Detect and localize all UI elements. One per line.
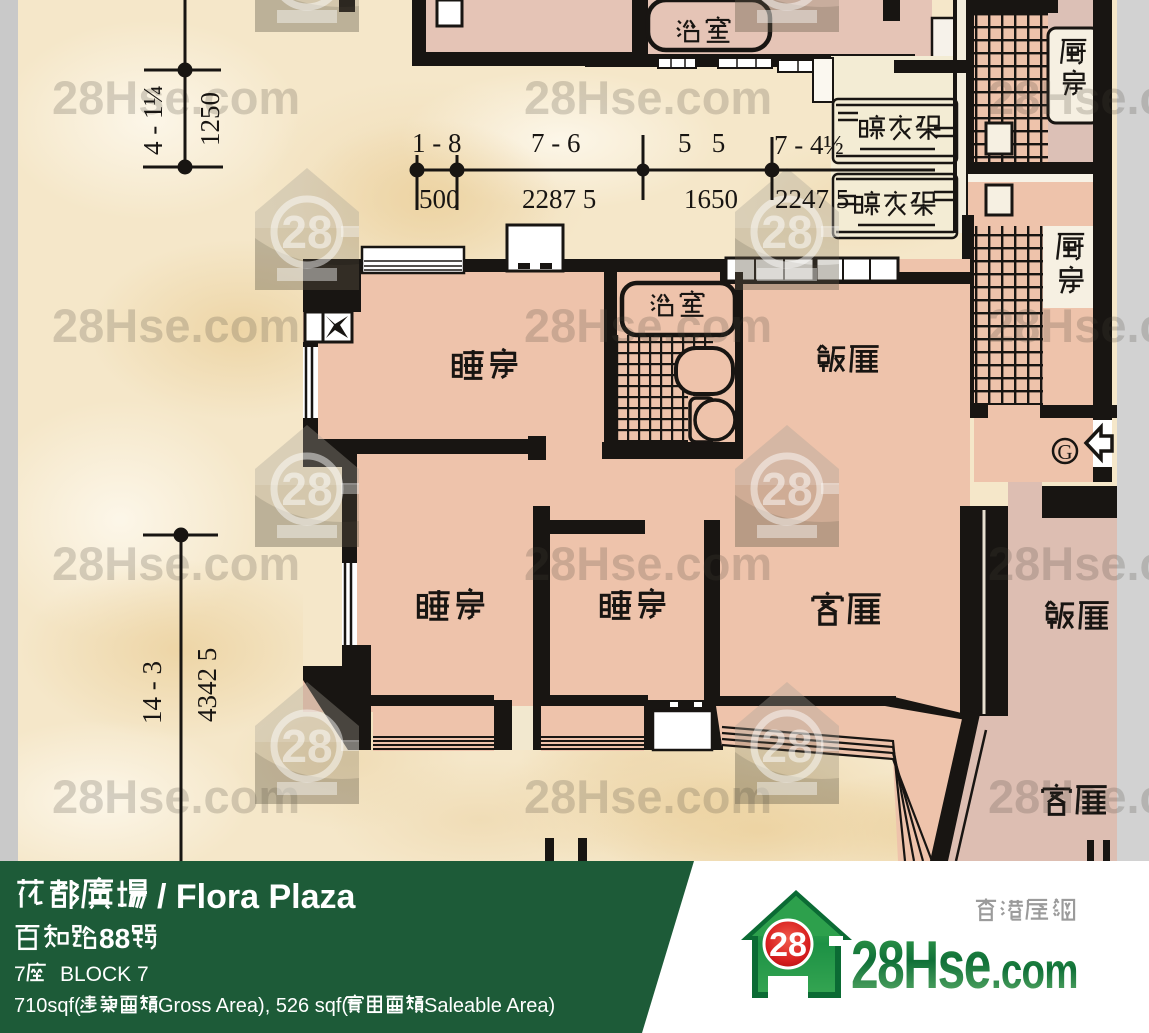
svg-text:/ Flora Plaza: / Flora Plaza xyxy=(157,878,356,916)
svg-text:7 - 4½: 7 - 4½ xyxy=(774,130,844,160)
svg-text:2287 5: 2287 5 xyxy=(522,184,596,214)
svg-text:28Hse.com: 28Hse.com xyxy=(524,299,772,352)
svg-text:BLOCK 7: BLOCK 7 xyxy=(60,963,149,986)
svg-text:14 - 3: 14 - 3 xyxy=(137,661,167,724)
svg-text:28Hse.com: 28Hse.com xyxy=(988,71,1149,124)
svg-text:1 - 8: 1 - 8 xyxy=(412,128,462,158)
svg-text:4 - 1¼: 4 - 1¼ xyxy=(138,85,168,155)
svg-text:500: 500 xyxy=(419,184,460,214)
svg-text:28Hse: 28Hse xyxy=(851,926,990,1003)
svg-text:4342 5: 4342 5 xyxy=(192,648,222,722)
svg-text:28Hse.com: 28Hse.com xyxy=(52,71,300,124)
svg-text:1650: 1650 xyxy=(684,184,738,214)
svg-text:5 5: 5 5 xyxy=(678,128,725,158)
svg-text:28Hse.com: 28Hse.com xyxy=(988,537,1149,590)
svg-text:28Hse.com: 28Hse.com xyxy=(524,770,772,823)
svg-text:1250: 1250 xyxy=(195,92,225,146)
svg-text:28Hse.com: 28Hse.com xyxy=(524,537,772,590)
svg-text:28Hse.com: 28Hse.com xyxy=(524,71,772,124)
svg-text:88: 88 xyxy=(99,923,130,954)
svg-text:Gross Area), 526 sqf(: Gross Area), 526 sqf( xyxy=(158,995,348,1017)
svg-text:G: G xyxy=(1057,440,1072,464)
svg-text:28Hse.com: 28Hse.com xyxy=(988,299,1149,352)
svg-text:28: 28 xyxy=(769,926,807,964)
svg-text:28Hse.com: 28Hse.com xyxy=(52,299,300,352)
svg-text:7: 7 xyxy=(14,963,26,986)
svg-text:Saleable Area): Saleable Area) xyxy=(424,995,555,1017)
svg-text:710sqf(: 710sqf( xyxy=(14,995,81,1017)
svg-text:28Hse.com: 28Hse.com xyxy=(988,770,1149,823)
svg-text:2247 5: 2247 5 xyxy=(775,184,849,214)
svg-text:7 - 6: 7 - 6 xyxy=(531,128,581,158)
svg-text:.com: .com xyxy=(991,944,1078,999)
